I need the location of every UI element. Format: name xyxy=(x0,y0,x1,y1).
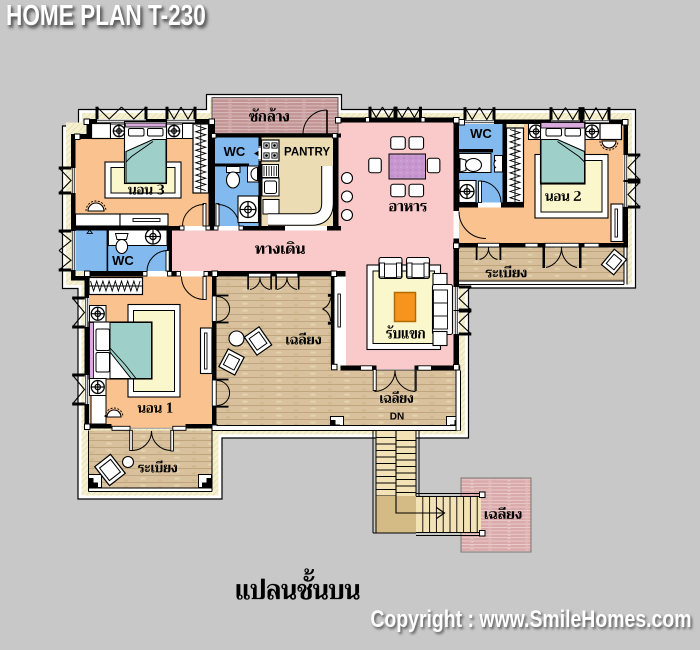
svg-text:DN: DN xyxy=(390,412,404,423)
svg-text:WC: WC xyxy=(224,144,246,159)
svg-text:WC: WC xyxy=(470,126,492,141)
svg-text:WC: WC xyxy=(112,253,134,268)
svg-text:PANTRY: PANTRY xyxy=(284,147,330,159)
